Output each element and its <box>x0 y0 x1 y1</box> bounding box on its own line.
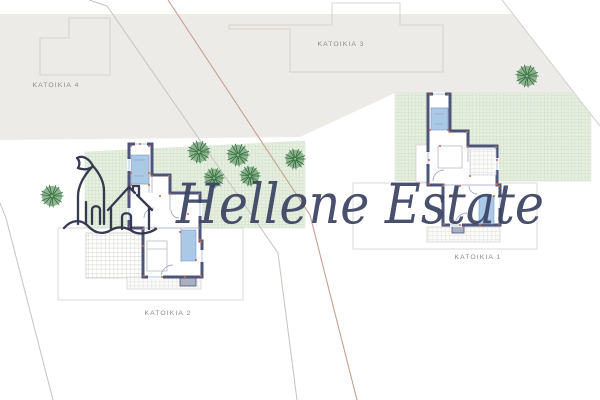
dimension-dot <box>199 239 201 241</box>
dimension-dot <box>148 172 150 174</box>
dimension-dot <box>429 129 431 131</box>
label-katoikia-4: KATOIKIA 4 <box>32 82 79 89</box>
bed-katoikia-1 <box>438 146 462 168</box>
bathroom-katoikia-2 <box>131 155 149 184</box>
dimension-dot <box>169 193 171 195</box>
dimension-dot <box>142 228 144 230</box>
dimension-dot <box>143 275 145 277</box>
dimension-dot <box>466 131 468 133</box>
dimension-dot <box>130 145 132 147</box>
terrace-grid-katoikia-2 <box>86 233 143 278</box>
dimension-dot <box>139 143 141 145</box>
dimension-dot <box>495 146 497 148</box>
site-plan-page: KATOIKIA 4 KATOIKIA 3 KATOIKIA 2 KATOIKI… <box>0 0 600 400</box>
dimension-dot <box>195 259 197 261</box>
dimension-dot <box>142 245 144 247</box>
label-katoikia-2: KATOIKIA 2 <box>144 310 191 317</box>
bed-katoikia-2 <box>147 241 167 271</box>
dimension-dot <box>447 129 449 131</box>
dimension-dot <box>200 275 202 277</box>
dimension-dot <box>151 175 153 177</box>
dimension-dot <box>148 145 150 147</box>
dimension-dot <box>439 145 441 147</box>
dimension-dot <box>129 193 131 195</box>
dimension-dot <box>200 241 202 243</box>
dimension-dot <box>168 175 170 177</box>
dimension-dot <box>449 131 451 133</box>
bathroom-katoikia-1 <box>431 108 448 130</box>
dimension-dot <box>447 94 449 96</box>
dimension-dot <box>429 94 431 96</box>
label-katoikia-3: KATOIKIA 3 <box>317 41 364 48</box>
label-katoikia-1: KATOIKIA 1 <box>454 254 501 261</box>
dimension-dot <box>130 172 132 174</box>
dimension-dot <box>184 276 186 278</box>
dimension-dot <box>496 159 498 161</box>
dimension-dot <box>467 146 469 148</box>
dimension-dot <box>148 184 150 186</box>
dimension-dot <box>130 184 132 186</box>
dimension-dot <box>161 276 163 278</box>
watermark-brand-text: Hellene Estate <box>175 172 544 236</box>
site-plan-canvas: KATOIKIA 4 KATOIKIA 3 KATOIKIA 2 KATOIKI… <box>0 0 600 400</box>
dimension-dot <box>428 159 430 161</box>
dimension-dot <box>159 195 161 197</box>
